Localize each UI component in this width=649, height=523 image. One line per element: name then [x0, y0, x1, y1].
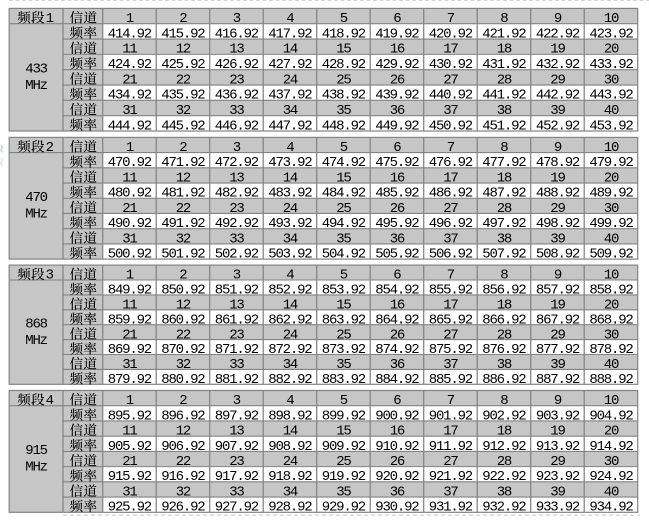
svg-text:MHz: MHz: [25, 333, 47, 349]
svg-text:927.92: 927.92: [215, 500, 259, 516]
svg-text:21: 21: [122, 454, 137, 470]
svg-text:880.92: 880.92: [161, 372, 205, 388]
svg-text:884.92: 884.92: [375, 372, 419, 388]
svg-text:473.92: 473.92: [268, 155, 312, 171]
svg-text:863.92: 863.92: [322, 312, 366, 328]
svg-text:10: 10: [604, 268, 619, 284]
svg-text:14: 14: [283, 170, 298, 186]
svg-text:37: 37: [443, 357, 458, 373]
svg-text:14: 14: [283, 424, 298, 440]
svg-text:904.92: 904.92: [589, 408, 633, 424]
svg-text:10: 10: [604, 140, 619, 156]
svg-text:17: 17: [443, 42, 458, 58]
svg-text:MHz: MHz: [25, 207, 47, 223]
svg-text:40: 40: [604, 484, 619, 500]
svg-text:36: 36: [390, 103, 405, 119]
svg-text:29: 29: [550, 201, 565, 217]
svg-text:453.92: 453.92: [589, 118, 633, 134]
svg-text:924.92: 924.92: [589, 469, 633, 485]
svg-text:440.92: 440.92: [429, 88, 473, 104]
svg-text:19: 19: [550, 170, 565, 186]
svg-text:30: 30: [604, 201, 619, 217]
svg-text:21: 21: [122, 72, 137, 88]
svg-text:508.92: 508.92: [536, 247, 580, 263]
svg-text:868.92: 868.92: [589, 312, 633, 328]
svg-text:3: 3: [233, 140, 241, 156]
svg-text:470.92: 470.92: [108, 155, 152, 171]
svg-text:418.92: 418.92: [322, 26, 366, 42]
svg-text:917.92: 917.92: [215, 469, 259, 485]
svg-text:428.92: 428.92: [322, 57, 366, 73]
svg-text:4: 4: [46, 393, 54, 409]
svg-text:26: 26: [390, 454, 405, 470]
svg-text:29: 29: [550, 454, 565, 470]
svg-text:885.92: 885.92: [429, 372, 473, 388]
svg-text:868: 868: [25, 316, 47, 332]
svg-text:921.92: 921.92: [429, 469, 473, 485]
svg-text:21: 21: [122, 327, 137, 343]
svg-text:4: 4: [286, 140, 294, 156]
svg-text:446.92: 446.92: [215, 118, 259, 134]
svg-text:494.92: 494.92: [322, 216, 366, 232]
svg-text:3: 3: [46, 268, 54, 284]
svg-text:32: 32: [176, 357, 191, 373]
svg-text:482.92: 482.92: [215, 186, 259, 202]
svg-text:18: 18: [497, 42, 512, 58]
svg-text:5: 5: [340, 11, 348, 27]
svg-text:887.92: 887.92: [536, 372, 580, 388]
svg-text:20: 20: [604, 298, 619, 314]
svg-text:39: 39: [550, 484, 565, 500]
svg-text:918.92: 918.92: [268, 469, 312, 485]
svg-text:915.92: 915.92: [108, 469, 152, 485]
svg-text:25: 25: [336, 454, 351, 470]
svg-text:13: 13: [229, 298, 244, 314]
svg-text:870.92: 870.92: [161, 342, 205, 358]
svg-text:934.92: 934.92: [589, 500, 633, 516]
svg-text:22: 22: [176, 72, 191, 88]
svg-text:13: 13: [229, 424, 244, 440]
svg-text:18: 18: [497, 170, 512, 186]
svg-text:1: 1: [46, 11, 54, 27]
svg-text:2: 2: [179, 11, 187, 27]
svg-text:11: 11: [122, 424, 137, 440]
svg-text:500.92: 500.92: [108, 247, 152, 263]
svg-text:2: 2: [46, 140, 54, 156]
svg-text:20: 20: [604, 170, 619, 186]
svg-text:897.92: 897.92: [215, 408, 259, 424]
svg-text:12: 12: [176, 424, 191, 440]
svg-text:867.92: 867.92: [536, 312, 580, 328]
svg-text:28: 28: [497, 327, 512, 343]
svg-text:22: 22: [176, 201, 191, 217]
svg-text:23: 23: [229, 201, 244, 217]
svg-text:865.92: 865.92: [429, 312, 473, 328]
svg-text:856.92: 856.92: [482, 283, 526, 299]
svg-text:25: 25: [336, 327, 351, 343]
svg-text:485.92: 485.92: [375, 186, 419, 202]
svg-text:13: 13: [229, 42, 244, 58]
svg-text:488.92: 488.92: [536, 186, 580, 202]
svg-text:414.92: 414.92: [108, 26, 152, 42]
svg-text:MHz: MHz: [25, 460, 47, 476]
svg-text:439.92: 439.92: [375, 88, 419, 104]
svg-text:40: 40: [604, 103, 619, 119]
svg-text:859.92: 859.92: [108, 312, 152, 328]
svg-text:31: 31: [122, 103, 137, 119]
svg-text:424.92: 424.92: [108, 57, 152, 73]
svg-text:919.92: 919.92: [322, 469, 366, 485]
svg-text:5: 5: [340, 268, 348, 284]
svg-text:505.92: 505.92: [375, 247, 419, 263]
svg-text:853.92: 853.92: [322, 283, 366, 299]
svg-text:33: 33: [229, 103, 244, 119]
svg-text:36: 36: [390, 484, 405, 500]
svg-text:36: 36: [390, 357, 405, 373]
svg-text:15: 15: [336, 170, 351, 186]
svg-text:415.92: 415.92: [161, 26, 205, 42]
svg-text:860.92: 860.92: [161, 312, 205, 328]
svg-text:32: 32: [176, 103, 191, 119]
svg-text:34: 34: [283, 357, 298, 373]
svg-text:491.92: 491.92: [161, 216, 205, 232]
svg-text:909.92: 909.92: [322, 439, 366, 455]
svg-text:1: 1: [126, 11, 134, 27]
svg-text:912.92: 912.92: [482, 439, 526, 455]
svg-text:902.92: 902.92: [482, 408, 526, 424]
svg-text:6: 6: [393, 140, 401, 156]
svg-text:38: 38: [497, 103, 512, 119]
svg-text:900.92: 900.92: [375, 408, 419, 424]
svg-text:8: 8: [500, 393, 508, 409]
svg-text:4: 4: [286, 393, 294, 409]
svg-text:10: 10: [604, 393, 619, 409]
svg-text:920.92: 920.92: [375, 469, 419, 485]
svg-text:419.92: 419.92: [375, 26, 419, 42]
svg-text:6: 6: [393, 393, 401, 409]
svg-text:509.92: 509.92: [589, 247, 633, 263]
svg-text:483.92: 483.92: [268, 186, 312, 202]
svg-text:16: 16: [390, 42, 405, 58]
svg-text:926.92: 926.92: [161, 500, 205, 516]
svg-text:933.92: 933.92: [536, 500, 580, 516]
svg-text:19: 19: [550, 298, 565, 314]
svg-text:907.92: 907.92: [215, 439, 259, 455]
svg-text:436.92: 436.92: [215, 88, 259, 104]
svg-text:22: 22: [176, 454, 191, 470]
svg-text:888.92: 888.92: [589, 372, 633, 388]
svg-text:930.92: 930.92: [375, 500, 419, 516]
svg-text:851.92: 851.92: [215, 283, 259, 299]
svg-text:855.92: 855.92: [429, 283, 473, 299]
svg-text:5: 5: [340, 140, 348, 156]
svg-text:849.92: 849.92: [108, 283, 152, 299]
svg-text:32: 32: [176, 231, 191, 247]
svg-text:11: 11: [122, 298, 137, 314]
svg-text:925.92: 925.92: [108, 500, 152, 516]
svg-text:871.92: 871.92: [215, 342, 259, 358]
svg-text:37: 37: [443, 103, 458, 119]
svg-text:26: 26: [390, 72, 405, 88]
svg-text:903.92: 903.92: [536, 408, 580, 424]
svg-text:895.92: 895.92: [108, 408, 152, 424]
svg-text:911.92: 911.92: [429, 439, 473, 455]
svg-text:502.92: 502.92: [215, 247, 259, 263]
svg-text:12: 12: [176, 170, 191, 186]
svg-text:492.92: 492.92: [215, 216, 259, 232]
svg-text:480.92: 480.92: [108, 186, 152, 202]
svg-text:471.92: 471.92: [161, 155, 205, 171]
svg-text:435.92: 435.92: [161, 88, 205, 104]
svg-text:506.92: 506.92: [429, 247, 473, 263]
svg-text:24: 24: [283, 454, 298, 470]
svg-text:27: 27: [443, 72, 458, 88]
svg-text:877.92: 877.92: [536, 342, 580, 358]
svg-text:442.92: 442.92: [536, 88, 580, 104]
svg-text:15: 15: [336, 298, 351, 314]
svg-text:31: 31: [122, 357, 137, 373]
svg-text:879.92: 879.92: [108, 372, 152, 388]
svg-text:477.92: 477.92: [482, 155, 526, 171]
svg-text:30: 30: [604, 327, 619, 343]
svg-text:886.92: 886.92: [482, 372, 526, 388]
svg-text:35: 35: [336, 231, 351, 247]
svg-text:427.92: 427.92: [268, 57, 312, 73]
svg-text:27: 27: [443, 327, 458, 343]
svg-text:32: 32: [176, 484, 191, 500]
svg-text:882.92: 882.92: [268, 372, 312, 388]
svg-text:490.92: 490.92: [108, 216, 152, 232]
svg-text:913.92: 913.92: [536, 439, 580, 455]
svg-text:35: 35: [336, 357, 351, 373]
svg-text:479.92: 479.92: [589, 155, 633, 171]
svg-text:20: 20: [604, 424, 619, 440]
svg-text:501.92: 501.92: [161, 247, 205, 263]
svg-text:2: 2: [179, 393, 187, 409]
svg-text:432.92: 432.92: [536, 57, 580, 73]
svg-text:448.92: 448.92: [322, 118, 366, 134]
svg-text:36: 36: [390, 231, 405, 247]
svg-text:416.92: 416.92: [215, 26, 259, 42]
svg-text:486.92: 486.92: [429, 186, 473, 202]
svg-text:417.92: 417.92: [268, 26, 312, 42]
svg-text:899.92: 899.92: [322, 408, 366, 424]
svg-text:869.92: 869.92: [108, 342, 152, 358]
svg-text:24: 24: [283, 201, 298, 217]
svg-text:475.92: 475.92: [375, 155, 419, 171]
svg-text:39: 39: [550, 231, 565, 247]
svg-text:9: 9: [554, 393, 562, 409]
svg-text:28: 28: [497, 454, 512, 470]
svg-text:24: 24: [283, 72, 298, 88]
svg-text:898.92: 898.92: [268, 408, 312, 424]
svg-text:431.92: 431.92: [482, 57, 526, 73]
svg-text:38: 38: [497, 231, 512, 247]
svg-text:34: 34: [283, 103, 298, 119]
svg-text:433: 433: [25, 62, 47, 78]
svg-text:496.92: 496.92: [429, 216, 473, 232]
svg-text:25: 25: [336, 201, 351, 217]
svg-text:30: 30: [604, 454, 619, 470]
svg-text:452.92: 452.92: [536, 118, 580, 134]
svg-text:470: 470: [25, 190, 47, 206]
svg-text:437.92: 437.92: [268, 88, 312, 104]
svg-text:3: 3: [233, 268, 241, 284]
svg-text:31: 31: [122, 484, 137, 500]
svg-text:854.92: 854.92: [375, 283, 419, 299]
svg-text:19: 19: [550, 424, 565, 440]
svg-text:17: 17: [443, 424, 458, 440]
svg-text:864.92: 864.92: [375, 312, 419, 328]
svg-text:9: 9: [554, 11, 562, 27]
svg-text:850.92: 850.92: [161, 283, 205, 299]
svg-text:6: 6: [393, 11, 401, 27]
svg-text:24: 24: [283, 327, 298, 343]
svg-text:7: 7: [447, 268, 455, 284]
svg-text:438.92: 438.92: [322, 88, 366, 104]
svg-text:25: 25: [336, 72, 351, 88]
svg-text:40: 40: [604, 357, 619, 373]
svg-text:40: 40: [604, 231, 619, 247]
svg-text:20: 20: [604, 42, 619, 58]
svg-text:21: 21: [122, 201, 137, 217]
svg-text:487.92: 487.92: [482, 186, 526, 202]
svg-text:476.92: 476.92: [429, 155, 473, 171]
svg-text:7: 7: [447, 11, 455, 27]
svg-text:14: 14: [283, 298, 298, 314]
svg-text:928.92: 928.92: [268, 500, 312, 516]
svg-text:875.92: 875.92: [429, 342, 473, 358]
svg-text:478.92: 478.92: [536, 155, 580, 171]
svg-text:498.92: 498.92: [536, 216, 580, 232]
svg-text:906.92: 906.92: [161, 439, 205, 455]
svg-text:12: 12: [176, 298, 191, 314]
svg-text:26: 26: [390, 201, 405, 217]
svg-text:35: 35: [336, 484, 351, 500]
svg-text:11: 11: [122, 170, 137, 186]
svg-text:26: 26: [390, 327, 405, 343]
svg-text:18: 18: [497, 424, 512, 440]
svg-text:29: 29: [550, 72, 565, 88]
svg-text:33: 33: [229, 231, 244, 247]
svg-text:17: 17: [443, 298, 458, 314]
svg-text:481.92: 481.92: [161, 186, 205, 202]
svg-text:1: 1: [126, 268, 134, 284]
svg-text:915: 915: [25, 443, 47, 459]
svg-text:447.92: 447.92: [268, 118, 312, 134]
svg-text:497.92: 497.92: [482, 216, 526, 232]
svg-text:901.92: 901.92: [429, 408, 473, 424]
svg-text:12: 12: [176, 42, 191, 58]
svg-text:862.92: 862.92: [268, 312, 312, 328]
svg-text:33: 33: [229, 484, 244, 500]
svg-text:28: 28: [497, 72, 512, 88]
svg-text:914.92: 914.92: [589, 439, 633, 455]
svg-text:39: 39: [550, 357, 565, 373]
svg-text:3: 3: [233, 11, 241, 27]
svg-text:15: 15: [336, 424, 351, 440]
svg-text:27: 27: [443, 201, 458, 217]
svg-text:38: 38: [497, 357, 512, 373]
svg-text:873.92: 873.92: [322, 342, 366, 358]
svg-text:9: 9: [554, 140, 562, 156]
svg-text:5: 5: [340, 393, 348, 409]
svg-text:445.92: 445.92: [161, 118, 205, 134]
svg-text:34: 34: [283, 231, 298, 247]
svg-text:8: 8: [500, 268, 508, 284]
svg-text:422.92: 422.92: [536, 26, 580, 42]
svg-text:430.92: 430.92: [429, 57, 473, 73]
svg-text:29: 29: [550, 327, 565, 343]
svg-text:14: 14: [283, 42, 298, 58]
svg-text:10: 10: [604, 11, 619, 27]
svg-text:931.92: 931.92: [429, 500, 473, 516]
svg-text:38: 38: [497, 484, 512, 500]
svg-text:504.92: 504.92: [322, 247, 366, 263]
svg-text:23: 23: [229, 454, 244, 470]
svg-text:420.92: 420.92: [429, 26, 473, 42]
svg-text:866.92: 866.92: [482, 312, 526, 328]
svg-text:489.92: 489.92: [589, 186, 633, 202]
svg-text:905.92: 905.92: [108, 439, 152, 455]
svg-text:27: 27: [443, 454, 458, 470]
svg-text:910.92: 910.92: [375, 439, 419, 455]
svg-text:MHz: MHz: [25, 78, 47, 94]
svg-text:30: 30: [604, 72, 619, 88]
svg-text:474.92: 474.92: [322, 155, 366, 171]
svg-text:31: 31: [122, 231, 137, 247]
svg-text:484.92: 484.92: [322, 186, 366, 202]
svg-text:443.92: 443.92: [589, 88, 633, 104]
svg-text:37: 37: [443, 231, 458, 247]
svg-text:426.92: 426.92: [215, 57, 259, 73]
svg-text:449.92: 449.92: [375, 118, 419, 134]
svg-text:908.92: 908.92: [268, 439, 312, 455]
svg-text:857.92: 857.92: [536, 283, 580, 299]
svg-text:923.92: 923.92: [536, 469, 580, 485]
svg-text:11: 11: [122, 42, 137, 58]
svg-text:35: 35: [336, 103, 351, 119]
svg-text:421.92: 421.92: [482, 26, 526, 42]
svg-text:425.92: 425.92: [161, 57, 205, 73]
svg-text:1: 1: [126, 140, 134, 156]
svg-text:441.92: 441.92: [482, 88, 526, 104]
svg-text:28: 28: [497, 201, 512, 217]
svg-text:23: 23: [229, 327, 244, 343]
svg-text:15: 15: [336, 42, 351, 58]
svg-text:878.92: 878.92: [589, 342, 633, 358]
svg-text:451.92: 451.92: [482, 118, 526, 134]
svg-text:23: 23: [229, 72, 244, 88]
svg-text:16: 16: [390, 424, 405, 440]
svg-text:8: 8: [500, 11, 508, 27]
svg-text:9: 9: [554, 268, 562, 284]
svg-text:450.92: 450.92: [429, 118, 473, 134]
svg-text:17: 17: [443, 170, 458, 186]
svg-text:472.92: 472.92: [215, 155, 259, 171]
svg-text:8: 8: [500, 140, 508, 156]
svg-text:493.92: 493.92: [268, 216, 312, 232]
svg-text:39: 39: [550, 103, 565, 119]
svg-text:16: 16: [390, 298, 405, 314]
svg-text:507.92: 507.92: [482, 247, 526, 263]
svg-text:503.92: 503.92: [268, 247, 312, 263]
svg-text:423.92: 423.92: [589, 26, 633, 42]
svg-text:858.92: 858.92: [589, 283, 633, 299]
svg-text:896.92: 896.92: [161, 408, 205, 424]
svg-text:6: 6: [393, 268, 401, 284]
svg-text:874.92: 874.92: [375, 342, 419, 358]
